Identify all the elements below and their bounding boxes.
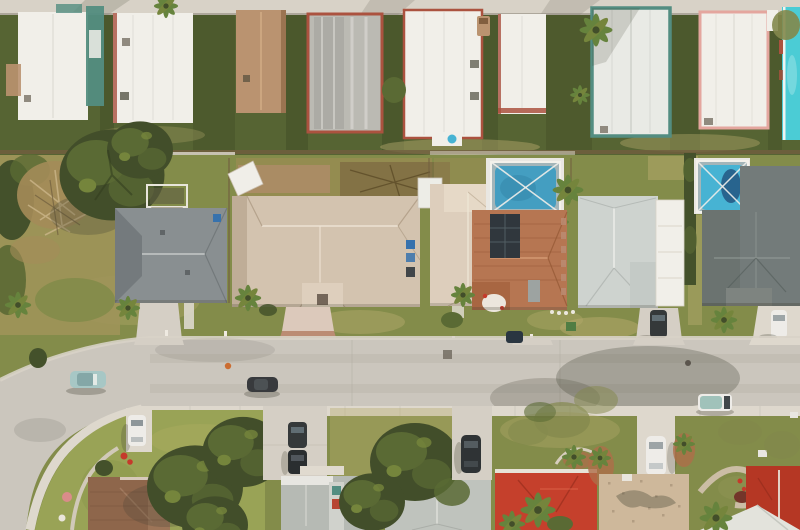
aerial-neighborhood-photo bbox=[0, 0, 800, 530]
photo-tint bbox=[0, 0, 800, 530]
